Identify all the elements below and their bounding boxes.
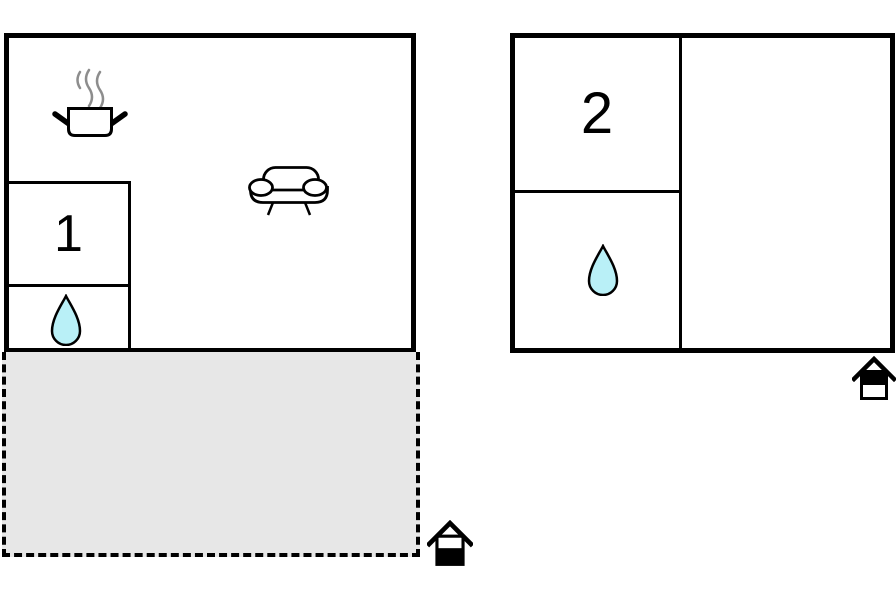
floor-plan: 1 2 xyxy=(0,0,896,597)
main-house-room1-right-wall xyxy=(128,181,131,352)
annex-vertical-divider xyxy=(679,38,682,348)
room-1-label: 1 xyxy=(9,184,128,284)
water-drop-icon xyxy=(50,294,82,346)
house-entrance-icon xyxy=(427,520,473,568)
main-house-room1-bathroom-divider xyxy=(4,284,131,287)
cooking-pot-icon xyxy=(45,60,129,140)
sofa-icon xyxy=(242,162,334,220)
room-2-label: 2 xyxy=(515,38,679,190)
terrace-area xyxy=(2,352,420,557)
annex-room2-bathroom-divider xyxy=(515,190,682,193)
house-entrance-icon xyxy=(852,356,896,402)
water-drop-icon xyxy=(587,244,619,296)
